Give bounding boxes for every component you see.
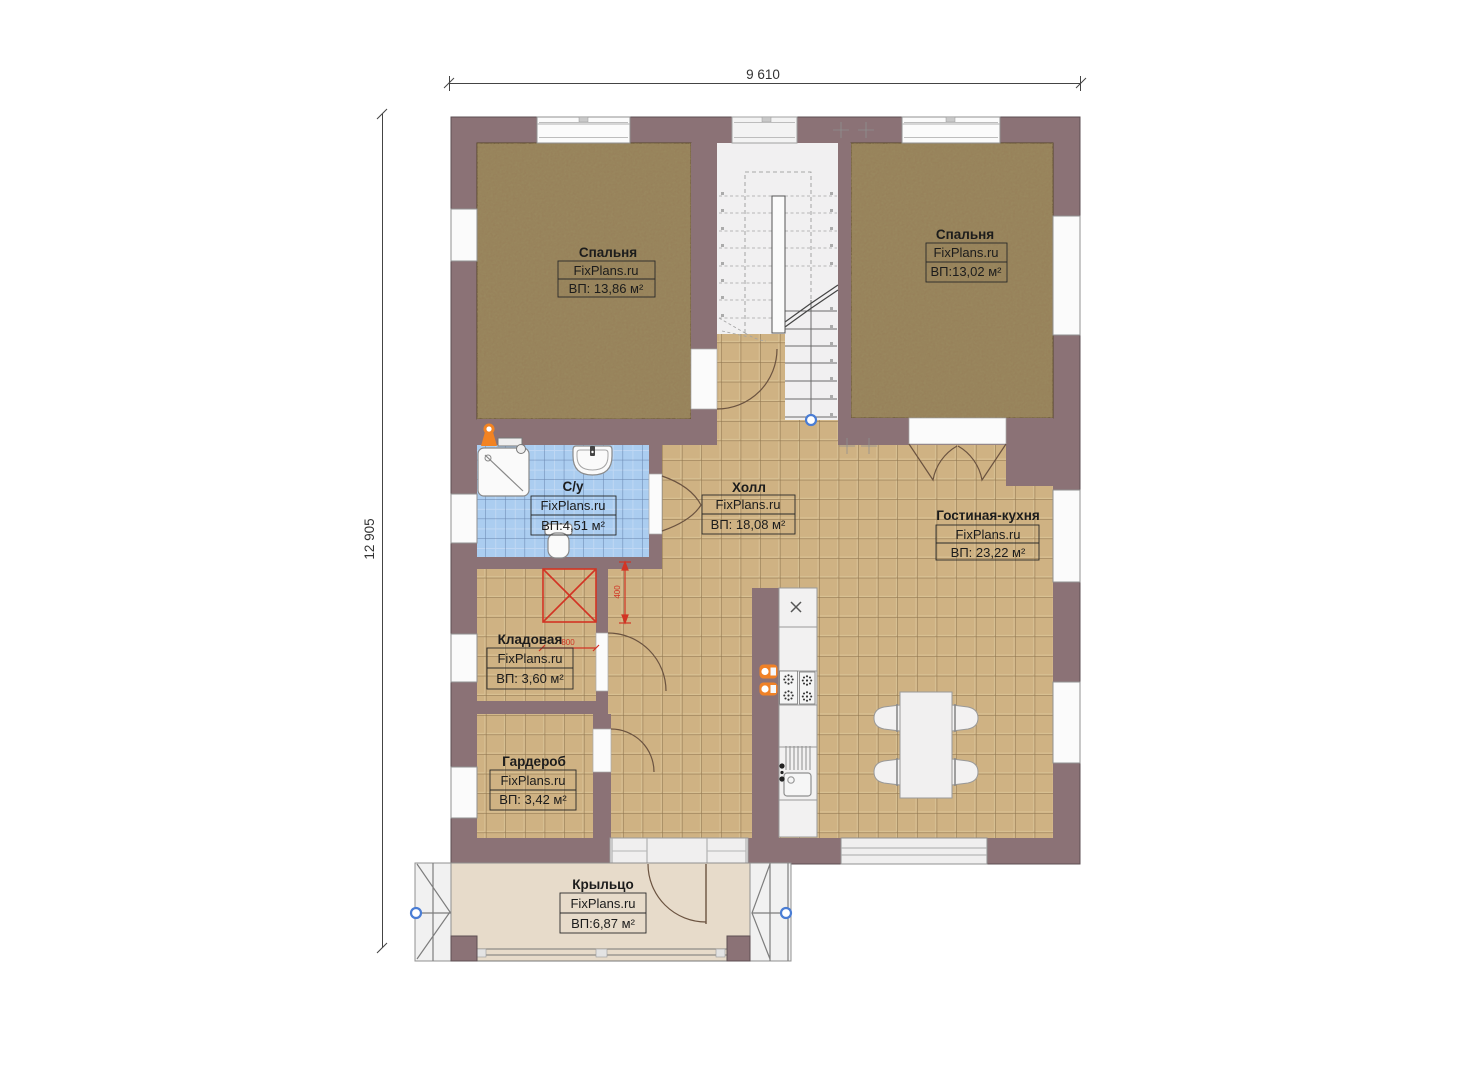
svg-text:Крыльцо: Крыльцо [572, 877, 633, 892]
svg-text:Гардероб: Гардероб [502, 754, 566, 769]
svg-text:FixPlans.ru: FixPlans.ru [955, 527, 1020, 542]
svg-text:ВП: 3,60 м²: ВП: 3,60 м² [496, 671, 564, 686]
svg-text:ВП: 3,42 м²: ВП: 3,42 м² [499, 792, 567, 807]
svg-text:FixPlans.ru: FixPlans.ru [573, 263, 638, 278]
svg-text:ВП: 18,08 м²: ВП: 18,08 м² [711, 517, 786, 532]
svg-text:FixPlans.ru: FixPlans.ru [570, 896, 635, 911]
svg-text:Спальня: Спальня [936, 227, 994, 242]
svg-text:ВП:4,51 м²: ВП:4,51 м² [541, 518, 605, 533]
svg-text:800: 800 [561, 638, 575, 647]
svg-text:С/у: С/у [562, 479, 584, 494]
svg-text:400: 400 [613, 585, 622, 599]
svg-text:Кладовая: Кладовая [498, 632, 563, 647]
svg-text:12 905: 12 905 [362, 518, 377, 559]
svg-text:Гостиная-кухня: Гостиная-кухня [936, 508, 1039, 523]
svg-text:9 610: 9 610 [746, 67, 780, 82]
svg-text:ВП:6,87 м²: ВП:6,87 м² [571, 916, 635, 931]
svg-text:ВП: 23,22 м²: ВП: 23,22 м² [951, 545, 1026, 560]
svg-text:FixPlans.ru: FixPlans.ru [933, 245, 998, 260]
svg-text:ВП:13,02 м²: ВП:13,02 м² [930, 264, 1002, 279]
svg-text:FixPlans.ru: FixPlans.ru [497, 651, 562, 666]
svg-text:FixPlans.ru: FixPlans.ru [500, 773, 565, 788]
svg-text:FixPlans.ru: FixPlans.ru [715, 497, 780, 512]
svg-text:Спальня: Спальня [579, 245, 637, 260]
svg-text:FixPlans.ru: FixPlans.ru [540, 498, 605, 513]
svg-text:ВП: 13,86 м²: ВП: 13,86 м² [569, 281, 644, 296]
svg-text:Холл: Холл [732, 480, 766, 495]
